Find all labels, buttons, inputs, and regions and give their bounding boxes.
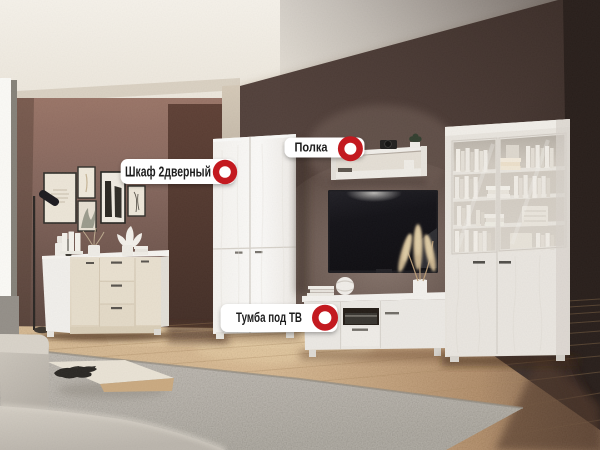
svg-text:Полка: Полка xyxy=(295,141,329,155)
svg-text:Шкаф 2дверный: Шкаф 2дверный xyxy=(125,165,211,181)
svg-text:Тумба под ТВ: Тумба под ТВ xyxy=(236,310,302,325)
